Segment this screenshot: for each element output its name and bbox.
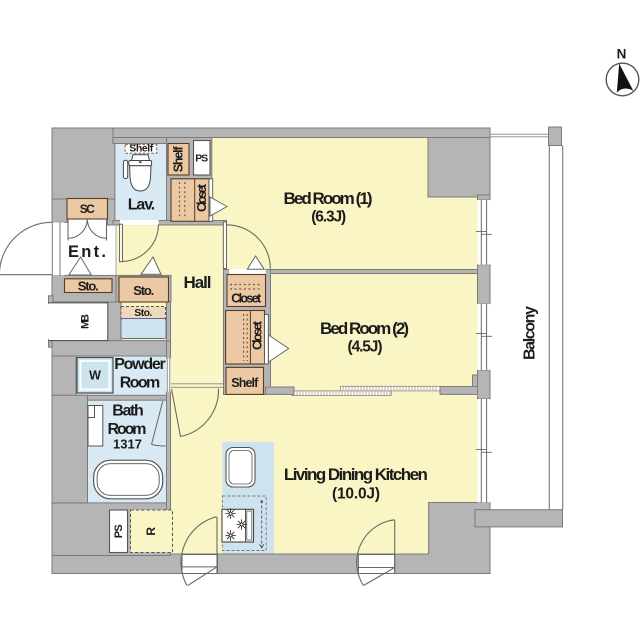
svg-text:SC: SC	[80, 202, 95, 216]
svg-text:N: N	[617, 47, 627, 62]
svg-text:MB: MB	[79, 314, 91, 329]
svg-text:Sto.: Sto.	[78, 279, 99, 294]
svg-text:PS: PS	[113, 524, 125, 538]
svg-text:Bed Room (2): Bed Room (2)	[320, 319, 409, 338]
svg-text:Shelf: Shelf	[172, 145, 186, 172]
svg-text:Powder: Powder	[114, 356, 166, 373]
svg-text:Room: Room	[120, 375, 161, 392]
svg-text:Living Dining Kitchen: Living Dining Kitchen	[284, 465, 428, 484]
svg-text:(4.5J): (4.5J)	[348, 339, 383, 356]
svg-text:Room: Room	[108, 421, 147, 438]
svg-text:Closet: Closet	[231, 292, 262, 306]
svg-text:Shelf: Shelf	[231, 376, 259, 390]
svg-text:Balcony: Balcony	[522, 306, 539, 360]
svg-text:Lav.: Lav.	[128, 197, 156, 214]
svg-text:Hall: Hall	[184, 273, 212, 292]
svg-text:Bath: Bath	[112, 403, 144, 420]
svg-text:Sto.: Sto.	[133, 283, 154, 298]
svg-text:(6.3J): (6.3J)	[311, 209, 346, 226]
svg-text:Closet: Closet	[251, 320, 265, 350]
svg-text:1317: 1317	[113, 437, 142, 452]
svg-text:Bed Room (1): Bed Room (1)	[284, 189, 373, 208]
svg-text:PS: PS	[195, 153, 208, 165]
svg-text:W: W	[89, 369, 101, 383]
svg-text:Closet: Closet	[195, 183, 209, 212]
svg-text:(10.0J): (10.0J)	[332, 486, 380, 503]
svg-text:Sto.: Sto.	[134, 307, 152, 319]
svg-text:Shelf: Shelf	[129, 143, 154, 155]
svg-text:R: R	[144, 527, 158, 536]
